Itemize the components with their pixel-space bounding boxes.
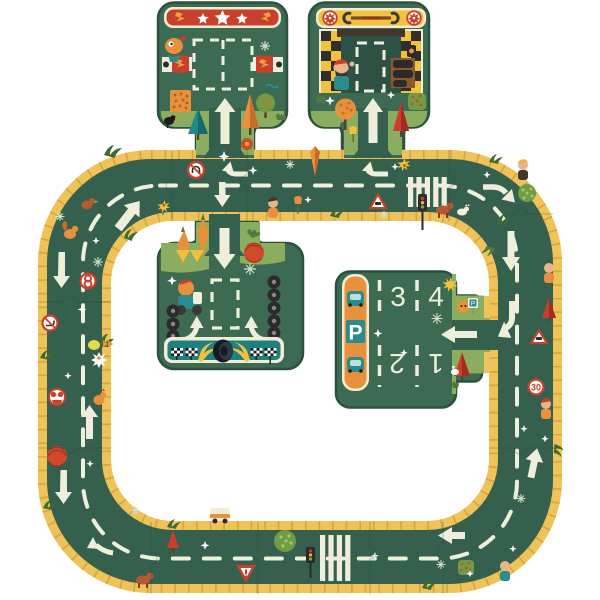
svg-text:P: P — [471, 301, 475, 308]
svg-text:P: P — [348, 322, 362, 345]
svg-text:30: 30 — [531, 383, 541, 393]
svg-text:1: 1 — [428, 348, 444, 379]
svg-text:4: 4 — [428, 281, 444, 312]
svg-text:3: 3 — [390, 281, 406, 312]
